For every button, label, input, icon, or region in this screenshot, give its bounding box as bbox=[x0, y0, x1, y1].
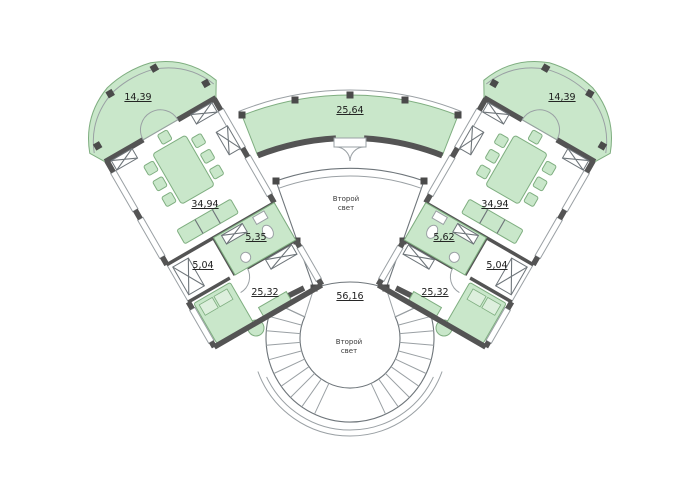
label-bedroom-left: 25,32 bbox=[251, 287, 278, 298]
floor-plan-canvas: 14,39 14,39 25,64 34,94 34,94 5,35 5,62 … bbox=[0, 0, 700, 495]
left-wing bbox=[64, 36, 331, 352]
label-bath-left: 5,35 bbox=[245, 232, 266, 243]
hall-furniture bbox=[248, 320, 452, 336]
bed bbox=[194, 282, 253, 343]
void-lower-line1: Второй bbox=[336, 338, 362, 346]
label-hall-right: 34,94 bbox=[481, 199, 508, 210]
floor-plan: 14,39 14,39 25,64 34,94 34,94 5,35 5,62 … bbox=[0, 0, 700, 495]
label-stair-hall: 56,16 bbox=[336, 291, 363, 302]
void-upper-line2: свет bbox=[338, 204, 354, 212]
right-wing bbox=[369, 36, 636, 352]
staircase bbox=[258, 288, 442, 436]
void-labels: Второй свет Второй свет bbox=[333, 195, 362, 355]
label-small-left: 5,04 bbox=[192, 260, 213, 271]
label-bedroom-right: 25,32 bbox=[421, 287, 448, 298]
label-small-right: 5,04 bbox=[486, 260, 507, 271]
central-balcony bbox=[239, 90, 462, 161]
label-balcony: 25,64 bbox=[336, 105, 363, 116]
label-terrace-right: 14,39 bbox=[548, 92, 575, 103]
void-lower-line2: свет bbox=[341, 347, 357, 355]
label-terrace-left: 14,39 bbox=[124, 92, 151, 103]
void-upper-line1: Второй bbox=[333, 195, 359, 203]
stair-railing bbox=[258, 372, 442, 437]
atrium-void bbox=[273, 168, 428, 291]
label-bath-right: 5,62 bbox=[433, 232, 454, 243]
label-hall-left: 34,94 bbox=[191, 199, 218, 210]
balcony-door bbox=[334, 138, 366, 161]
stair-steps bbox=[266, 303, 433, 415]
